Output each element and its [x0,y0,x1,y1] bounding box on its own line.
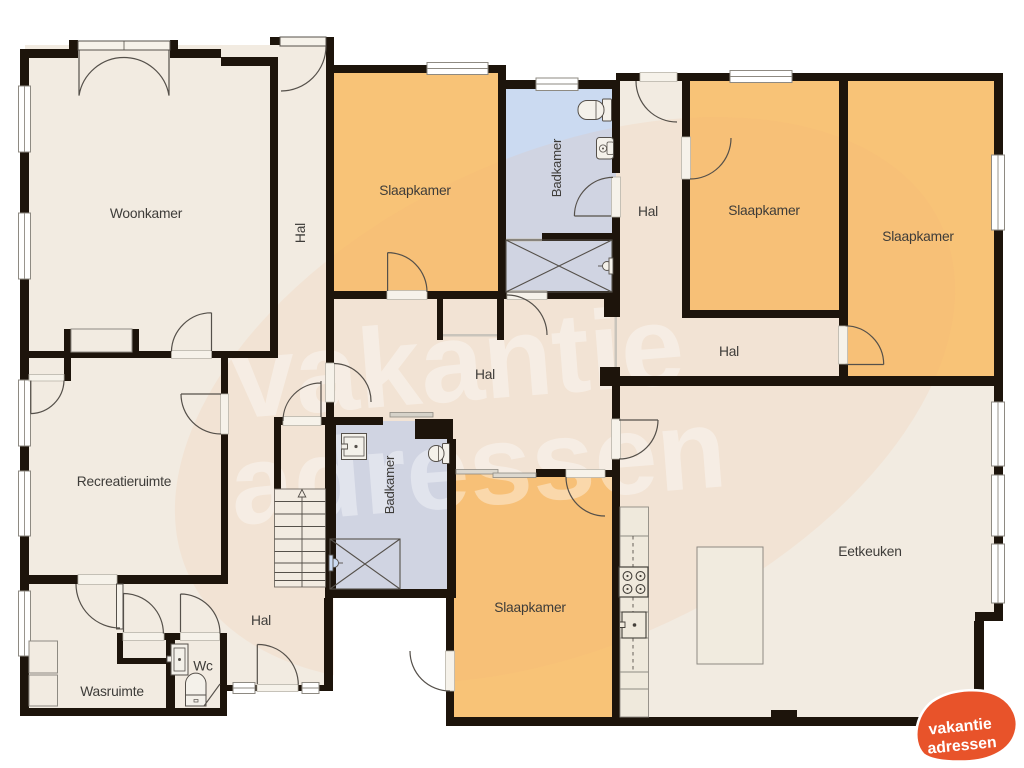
svg-text:Slaapkamer: Slaapkamer [379,183,451,198]
svg-text:Woonkamer: Woonkamer [110,206,183,221]
svg-text:Slaapkamer: Slaapkamer [882,229,954,244]
svg-text:Hal: Hal [475,367,495,382]
svg-text:Eetkeuken: Eetkeuken [838,544,901,559]
svg-text:Badkamer: Badkamer [549,138,564,197]
svg-text:Wc: Wc [193,659,213,674]
svg-text:Hal: Hal [293,223,308,243]
svg-text:Slaapkamer: Slaapkamer [728,203,800,218]
svg-text:Hal: Hal [719,344,739,359]
svg-text:Hal: Hal [251,613,271,628]
svg-text:Badkamer: Badkamer [382,455,397,514]
svg-text:Slaapkamer: Slaapkamer [494,600,566,615]
svg-text:Recreatieruimte: Recreatieruimte [77,474,172,489]
svg-text:Hal: Hal [638,204,658,219]
svg-text:Wasruimte: Wasruimte [80,684,144,699]
